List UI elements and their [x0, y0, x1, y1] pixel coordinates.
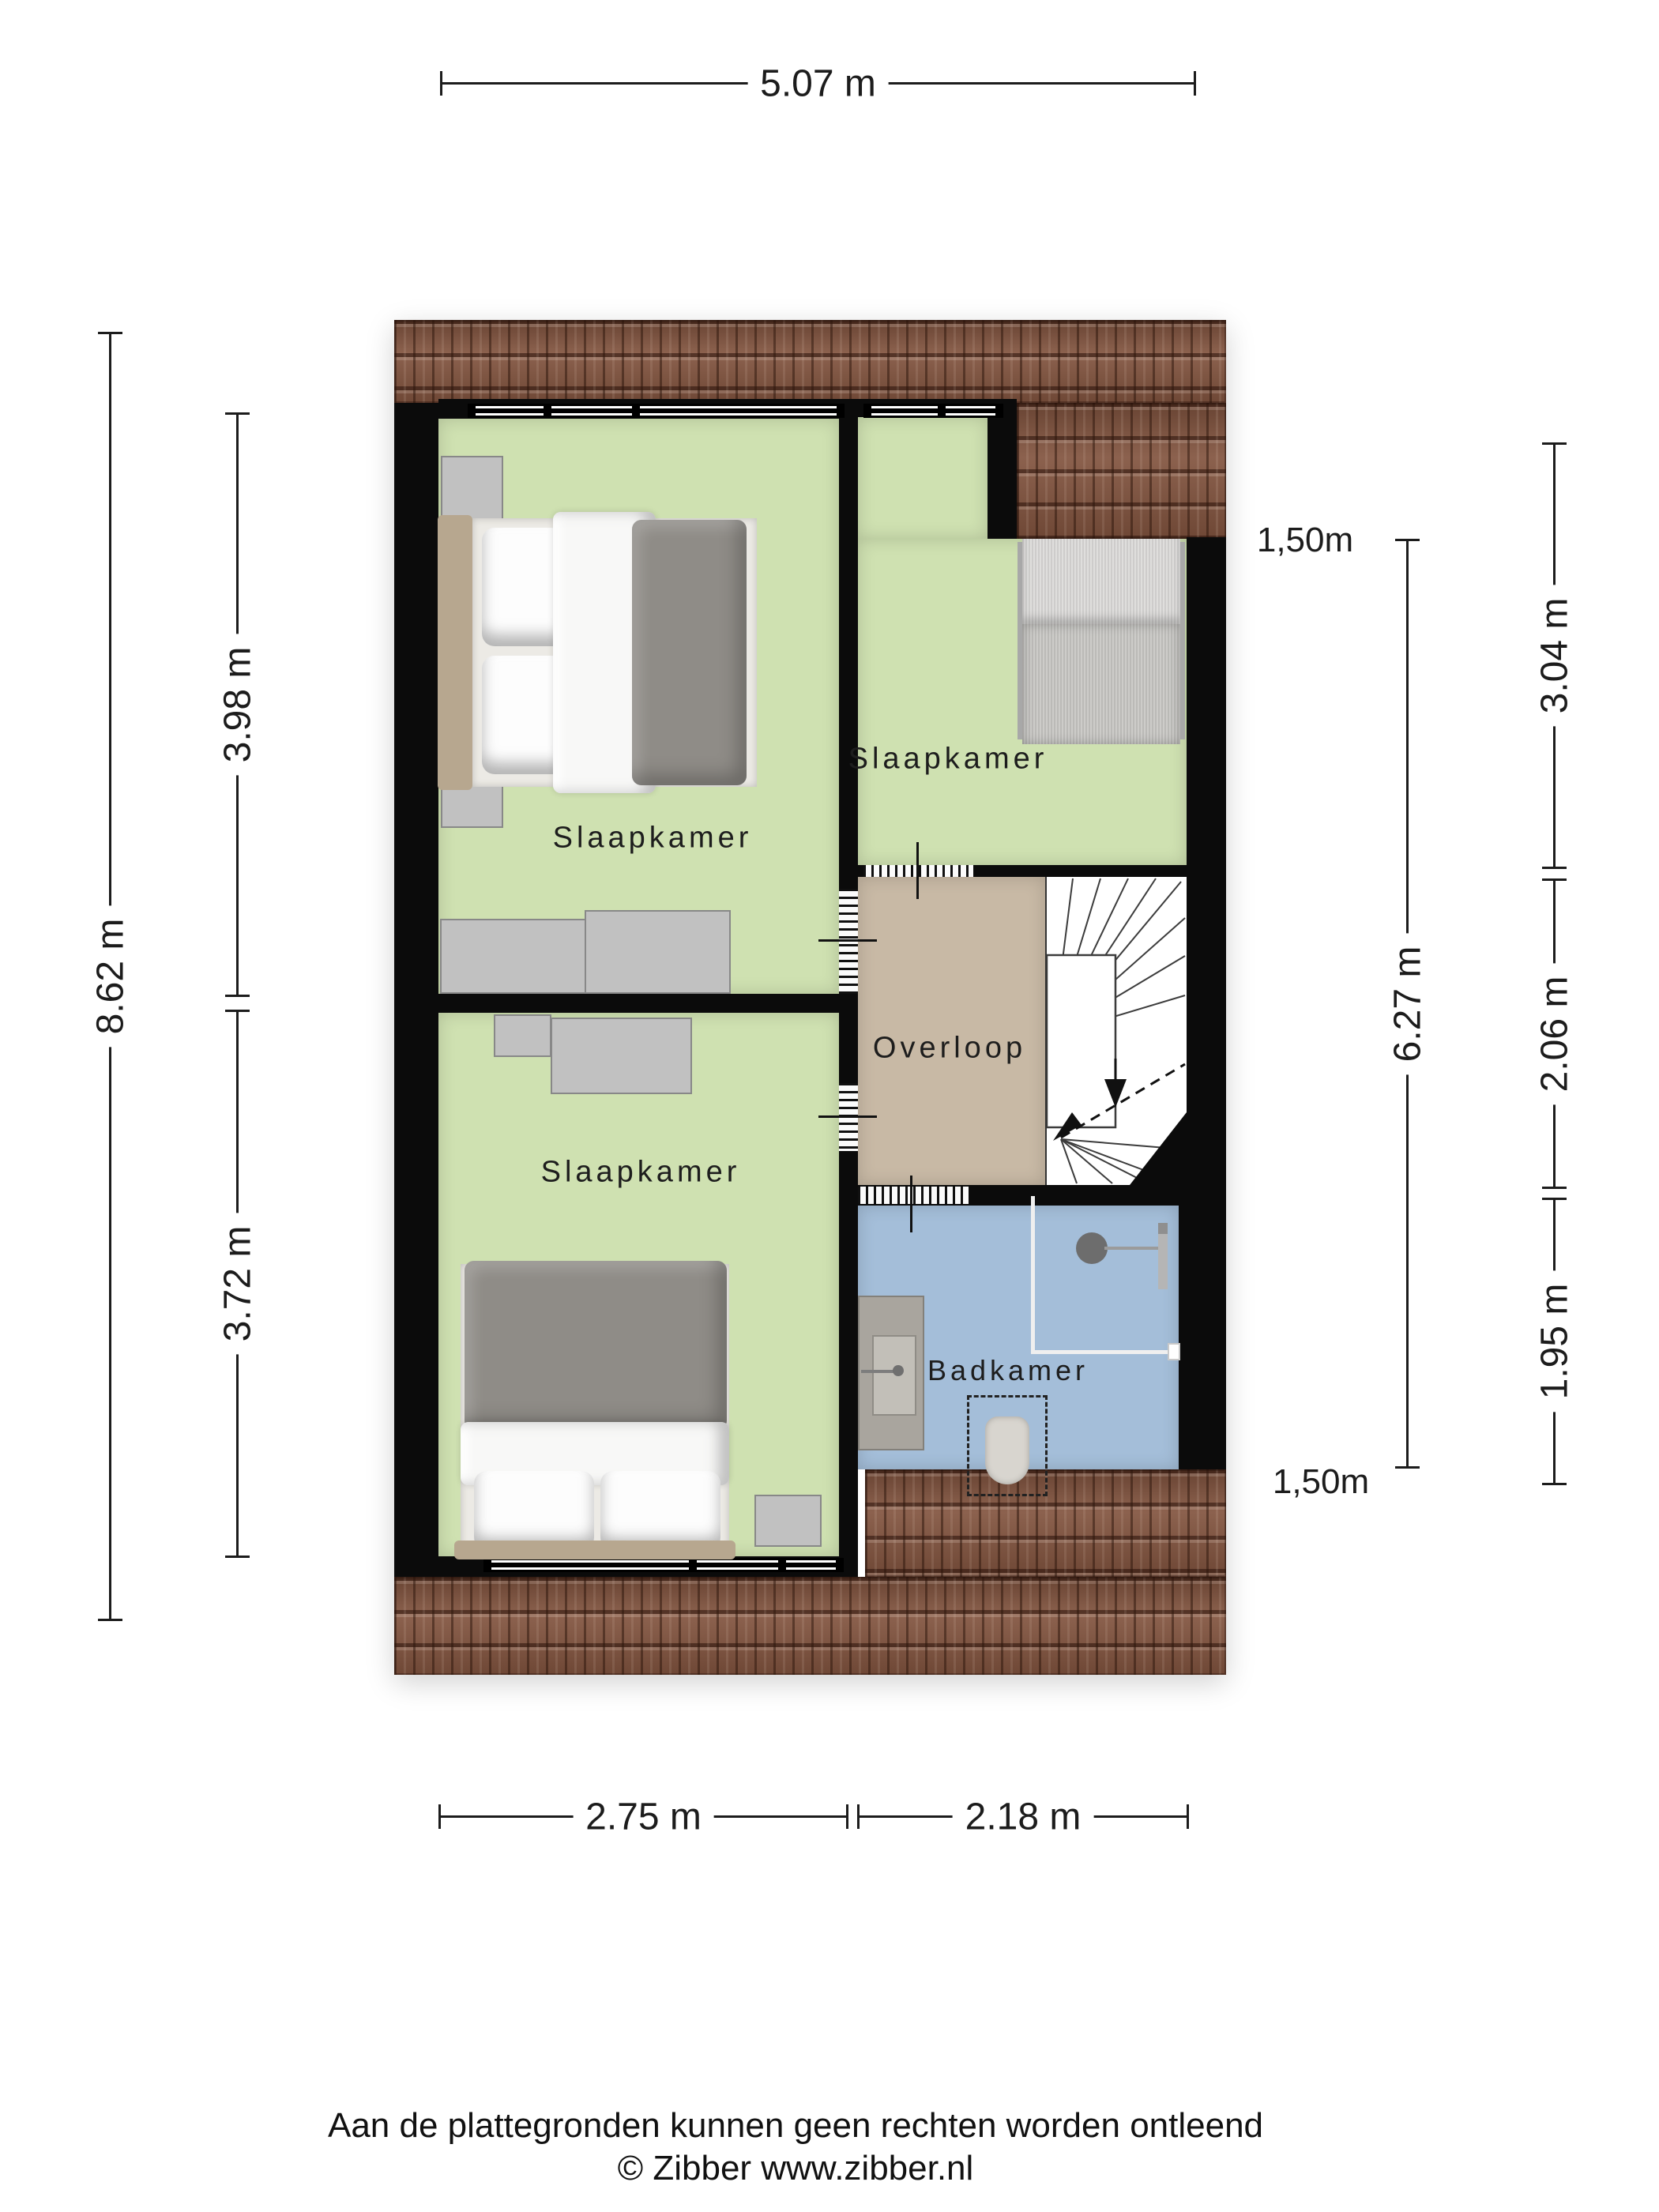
dim-left-height: 8.62 m — [109, 332, 111, 1621]
sink-basin — [872, 1335, 916, 1416]
bed-double — [454, 1261, 735, 1575]
window-frame — [778, 1558, 786, 1572]
floorplan-canvas: 5.07 m 2.22 m 8.62 m 3.98 m 3.72 m 6.27 … — [0, 0, 1659, 2212]
clearance-bottom-label: 1,50m — [1273, 1462, 1369, 1502]
toilet-bowl-icon — [985, 1416, 1029, 1484]
dim-bottom-left-width-label: 2.75 m — [573, 1793, 714, 1840]
bed-double — [438, 512, 757, 793]
window-top-right — [863, 404, 1003, 418]
disclaimer-text: Aan de plattegronden kunnen geen rechten… — [0, 2105, 1591, 2147]
wall-left — [394, 403, 438, 1577]
bed-headboard — [438, 515, 472, 790]
shower-head-icon — [1076, 1232, 1108, 1264]
bed-rail — [1180, 542, 1185, 739]
dim-tick — [1542, 442, 1567, 445]
clearance-top-label: 1,50m — [1257, 521, 1353, 560]
roof-top-right — [1017, 403, 1226, 539]
dim-bottom-right-width-label: 2.18 m — [953, 1793, 1094, 1840]
label-landing: Overloop — [873, 1032, 1026, 1066]
dim-right-height: 6.27 m — [1406, 539, 1409, 1469]
dim-right-height-label: 6.27 m — [1384, 933, 1431, 1074]
wall-right-bath — [1179, 1185, 1226, 1469]
dim-tick — [1542, 867, 1567, 869]
dim-right-upper: 3.04 m — [1553, 442, 1556, 869]
dim-left-upper: 3.98 m — [236, 412, 239, 997]
dim-right-middle-label: 2.06 m — [1531, 963, 1578, 1104]
window-frame — [468, 404, 476, 418]
dim-top-width: 5.07 m — [440, 82, 1196, 85]
label-bedroom-bottom-left: Slaapkamer — [541, 1156, 741, 1190]
desk — [551, 1018, 692, 1094]
label-bathroom: Badkamer — [927, 1354, 1089, 1387]
bed-single — [1018, 539, 1185, 744]
dim-tick — [1395, 539, 1420, 541]
shower-door-handle — [1168, 1343, 1180, 1360]
window-frame — [938, 404, 946, 418]
dim-tick — [98, 332, 122, 334]
dim-bottom-right-width: 2.18 m — [857, 1815, 1189, 1818]
dim-tick — [440, 71, 442, 96]
roof-top — [394, 320, 1226, 403]
faucet-icon — [861, 1370, 896, 1373]
dim-bottom-left-width: 2.75 m — [438, 1815, 848, 1818]
dim-left-upper-label: 3.98 m — [214, 634, 261, 776]
door-swing-mark — [818, 939, 877, 942]
sink-vanity — [858, 1296, 924, 1450]
bed-duvet — [632, 520, 747, 785]
toilet — [967, 1395, 1048, 1496]
bed-duvet — [465, 1261, 727, 1430]
dim-tick — [1542, 1198, 1567, 1200]
wardrobe — [440, 919, 586, 994]
wardrobe — [585, 910, 731, 994]
window-frame — [836, 1558, 844, 1572]
dim-right-lower-label: 1.95 m — [1531, 1271, 1578, 1413]
wall-roof-edge — [987, 399, 1017, 539]
room-bedroom-top-right-a — [858, 417, 987, 539]
wall-bedroom-divider — [394, 994, 858, 1013]
stair-core — [1047, 955, 1115, 1127]
credit-text: © Zibber www.zibber.nl — [0, 2147, 1591, 2190]
dim-tick — [1542, 1483, 1567, 1485]
dim-tick — [438, 1804, 441, 1829]
dim-tick — [1395, 1466, 1420, 1469]
dim-left-lower-label: 3.72 m — [214, 1213, 261, 1355]
dim-tick — [1542, 878, 1567, 881]
label-bedroom-top-left: Slaapkamer — [553, 822, 753, 856]
dim-tick — [225, 412, 250, 415]
dim-left-lower: 3.72 m — [236, 1010, 239, 1558]
window-frame — [544, 404, 551, 418]
dim-tick — [1194, 71, 1196, 96]
pillow — [474, 1471, 594, 1550]
window-frame — [837, 404, 845, 418]
dim-top-width-label: 5.07 m — [747, 60, 889, 107]
roof-bottom — [394, 1577, 1226, 1675]
dim-left-height-label: 8.62 m — [87, 906, 134, 1048]
bed-footboard — [454, 1540, 735, 1559]
nightstand — [754, 1495, 822, 1547]
pillow — [600, 1471, 720, 1550]
window-top-left — [468, 404, 845, 418]
shower-mixer-icon — [1158, 1223, 1168, 1289]
window-frame — [863, 404, 871, 418]
door-swing-mark — [910, 1176, 912, 1232]
door-bathroom — [858, 1187, 969, 1204]
shower-screen — [1031, 1196, 1035, 1354]
door-swing-mark — [818, 1115, 877, 1118]
label-bedroom-top-right: Slaapkamer — [848, 743, 1048, 777]
dim-tick — [225, 1010, 250, 1012]
window-frame — [632, 404, 640, 418]
dim-tick — [846, 1804, 848, 1829]
desk — [494, 1014, 551, 1057]
dim-tick — [1187, 1804, 1189, 1829]
window-frame — [995, 404, 1003, 418]
dim-right-middle: 2.06 m — [1553, 878, 1556, 1189]
stairs — [1045, 877, 1187, 1185]
dim-tick — [225, 1556, 250, 1558]
bed-blanket — [1022, 539, 1180, 624]
faucet-knob-icon — [893, 1365, 904, 1376]
door-swing-mark — [916, 842, 919, 899]
bed-mattress — [1022, 624, 1180, 744]
dim-tick — [225, 995, 250, 997]
dim-right-upper-label: 3.04 m — [1531, 585, 1578, 727]
dim-tick — [857, 1804, 860, 1829]
dim-right-lower: 1.95 m — [1553, 1198, 1556, 1485]
footer: Aan de plattegronden kunnen geen rechten… — [0, 2105, 1591, 2190]
dim-tick — [98, 1619, 122, 1621]
dim-tick — [1542, 1187, 1567, 1189]
wall-right-upper — [1187, 537, 1226, 1189]
